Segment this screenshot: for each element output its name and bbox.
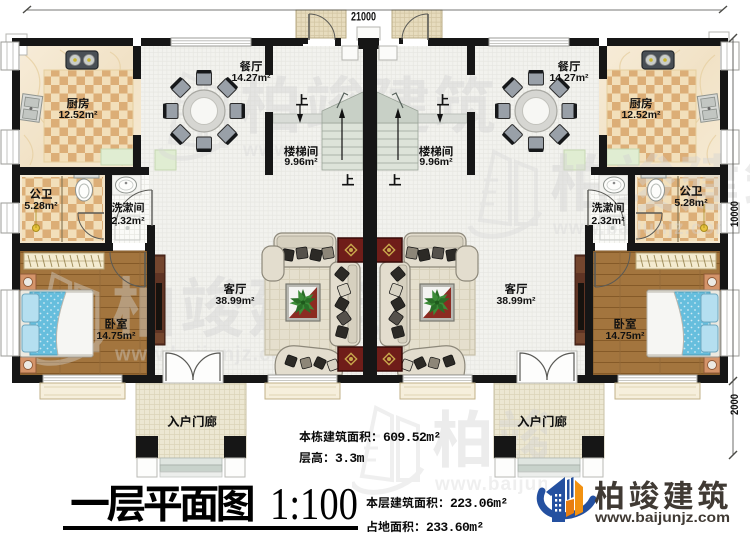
svg-text:233.60m²: 233.60m² bbox=[426, 520, 484, 535]
svg-text:2.32m²: 2.32m² bbox=[591, 215, 625, 227]
svg-text:9.96m²: 9.96m² bbox=[419, 156, 453, 168]
svg-text:10000: 10000 bbox=[729, 201, 741, 227]
svg-text:5.28m²: 5.28m² bbox=[674, 197, 708, 209]
svg-text:5.28m²: 5.28m² bbox=[24, 200, 58, 212]
svg-text:38.99m²: 38.99m² bbox=[496, 295, 536, 307]
svg-text:14.27m²: 14.27m² bbox=[549, 72, 589, 84]
svg-text:14.75m²: 14.75m² bbox=[96, 330, 136, 342]
svg-text:223.06m²: 223.06m² bbox=[450, 496, 508, 511]
svg-text:12.52m²: 12.52m² bbox=[58, 109, 98, 121]
svg-text:www.baijunjz.com: www.baijunjz.com bbox=[594, 509, 730, 525]
svg-text:2000: 2000 bbox=[729, 394, 741, 415]
svg-text:2.32m²: 2.32m² bbox=[111, 215, 145, 227]
svg-text:609.52m²: 609.52m² bbox=[383, 430, 441, 445]
svg-text:14.75m²: 14.75m² bbox=[605, 330, 645, 342]
svg-text:38.99m²: 38.99m² bbox=[215, 295, 255, 307]
svg-text:3.3m: 3.3m bbox=[335, 451, 365, 466]
svg-text:9.96m²: 9.96m² bbox=[284, 156, 318, 168]
svg-text:21000: 21000 bbox=[351, 12, 376, 24]
svg-text:14.27m²: 14.27m² bbox=[231, 72, 271, 84]
svg-text:12.52m²: 12.52m² bbox=[621, 109, 661, 121]
svg-text:1:100: 1:100 bbox=[270, 478, 358, 529]
